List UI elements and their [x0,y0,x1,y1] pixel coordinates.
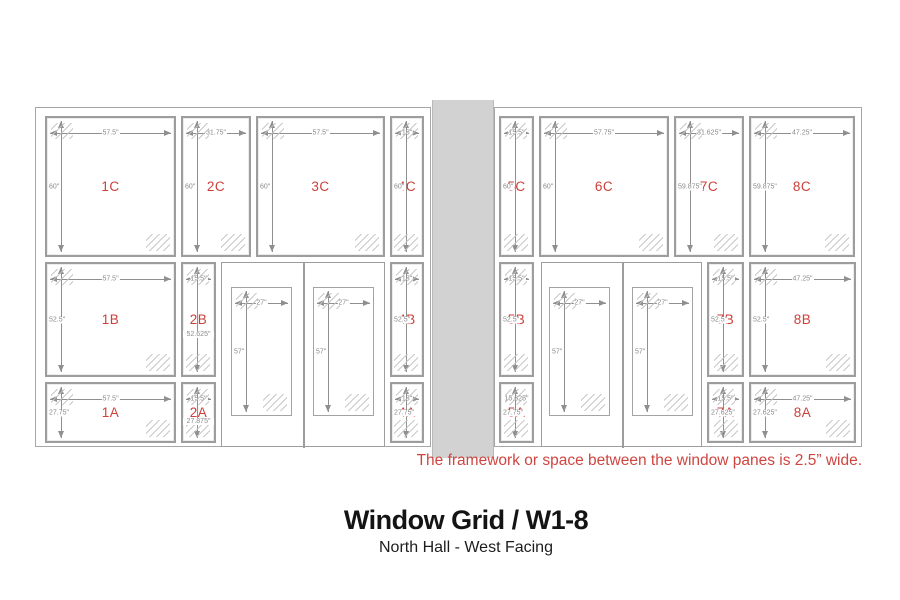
glass-hatch-icon [637,293,659,309]
height-dimension-label: 57" [233,348,245,355]
glass-hatch-icon [755,123,777,139]
glass-hatch-icon [318,293,340,309]
page-title: Window Grid / W1-8 [16,505,900,536]
right-door-glass-1: 27"57" [549,287,610,416]
glass-hatch-icon [545,123,567,139]
window-5C: 15.5"60"5C [499,116,534,257]
glass-hatch-icon [505,269,527,285]
arrow-down-icon [687,245,693,252]
height-dimension-label: 52.5" [502,316,520,323]
glass-hatch-icon [505,123,527,139]
glass-hatch-icon [146,354,170,371]
window-7A: 15.5"27.625"7A [707,382,744,443]
glass-hatch-icon [146,420,170,437]
arrow-right-icon [164,130,171,136]
window-2A: 15.5"27.875"2A [181,382,216,443]
glass-hatch-icon [146,234,170,251]
glass-hatch-icon [186,354,210,371]
window-2B: 15.5"52.625"2B [181,262,216,377]
arrow-right-icon [239,130,246,136]
arrow-right-icon [732,130,739,136]
glass-hatch-icon [755,389,777,405]
width-dimension-label: 57.5" [101,276,119,283]
arrow-down-icon [552,245,558,252]
arrow-right-icon [164,276,171,282]
window-8A: 47.25"27.625"8A [749,382,856,443]
glass-hatch-icon [826,420,850,437]
glass-hatch-icon [394,420,418,437]
glass-hatch-icon [187,389,209,405]
glass-hatch-icon [714,420,738,437]
window-8B: 47.25"52.5"8B [749,262,856,377]
width-dimension-label: 57.5" [101,396,119,403]
glass-hatch-icon [755,269,777,285]
height-dimension-label: 27.875" [183,418,214,425]
width-dimension-label: 47.25" [791,276,813,283]
window-label: 3C [258,178,383,193]
right-double-door-divider [622,263,624,448]
window-7B: 15.5"52.5"7B [707,262,744,377]
glass-hatch-icon [236,293,258,309]
glass-hatch-icon [396,123,418,139]
arrow-right-icon [844,276,851,282]
width-dimension-label: 57.75" [593,130,615,137]
glass-hatch-icon [714,234,738,251]
height-dimension-label: 59.875" [677,183,703,190]
arrow-down-icon [194,245,200,252]
left-door-glass-1: 27"57" [231,287,292,416]
arrow-right-icon [844,396,851,402]
window-grid-drawing: { "title": "Window Grid / W1-8", "subtit… [0,0,900,600]
height-dimension-label: 57" [634,348,646,355]
height-dimension-label: 27.625" [752,409,778,416]
window-5A: 15.625"27.75"5A [499,382,534,443]
height-dimension-label: 57" [551,348,563,355]
right-door-glass-2: 27"57" [632,287,693,416]
window-4B: 15"52.5"4B [390,262,424,377]
height-dimension-label: 60" [542,183,554,190]
height-dimension-label: 52.5" [710,316,728,323]
glass-hatch-icon [394,354,418,371]
arrow-right-icon [164,396,171,402]
height-dimension-label: 27.75" [502,409,524,416]
glass-hatch-icon [826,354,850,371]
glass-hatch-icon [825,234,849,251]
window-8C: 47.25"59.875"8C [749,116,855,257]
arrow-right-icon [363,300,370,306]
arrow-down-icon [58,245,64,252]
window-label: 6C [541,178,667,193]
arrow-down-icon [58,431,64,438]
window-5B: 15.5"52.5"5B [499,262,534,377]
glass-hatch-icon [51,269,73,285]
window-label: 2B [183,311,214,326]
framework-note: The framework or space between the windo… [417,452,862,470]
glass-hatch-icon [345,394,369,411]
arrow-right-icon [281,300,288,306]
glass-hatch-icon [51,389,73,405]
glass-hatch-icon [713,389,735,405]
glass-hatch-icon [714,354,738,371]
height-dimension-label: 60" [502,183,514,190]
arrow-down-icon [58,365,64,372]
window-2C: 31.75"60"2C [181,116,251,257]
arrow-down-icon [762,431,768,438]
glass-hatch-icon [504,420,528,437]
window-1C: 57.5"60"1C [45,116,176,257]
arrow-down-icon [561,405,567,412]
glass-hatch-icon [504,354,528,371]
arrow-down-icon [762,245,768,252]
arrow-down-icon [644,405,650,412]
arrow-down-icon [269,245,275,252]
window-4C: 15"60"4C [390,116,424,257]
arrow-right-icon [682,300,689,306]
arrow-down-icon [325,405,331,412]
glass-hatch-icon [581,394,605,411]
glass-hatch-icon [639,234,663,251]
glass-hatch-icon [664,394,688,411]
arrow-right-icon [657,130,664,136]
arrow-right-icon [373,130,380,136]
window-1B: 57.5"52.5"1B [45,262,176,377]
width-dimension-label: 57.5" [101,130,119,137]
width-dimension-label: 57.5" [311,130,329,137]
title-block: Window Grid / W1-8 North Hall - West Fac… [16,505,900,557]
glass-hatch-icon [396,269,418,285]
height-dimension-label: 60" [48,183,60,190]
height-dimension-label: 60" [184,183,196,190]
window-6C: 57.75"60"6C [539,116,669,257]
height-dimension-label: 60" [393,183,405,190]
height-dimension-label: 57" [315,348,327,355]
window-3C: 57.5"60"3C [256,116,385,257]
glass-hatch-icon [221,234,245,251]
arrow-right-icon [843,130,850,136]
glass-hatch-icon [396,389,418,405]
window-label: 1C [47,178,174,193]
height-dimension-label: 27.75" [48,409,70,416]
width-dimension-label: 47.25" [791,396,813,403]
arrow-down-icon [762,365,768,372]
height-dimension-label: 52.5" [393,316,411,323]
height-dimension-label: 59.875" [752,183,778,190]
height-dimension-label: 52.5" [48,316,66,323]
glass-hatch-icon [51,123,73,139]
height-dimension-label: 52.625" [183,331,214,338]
window-4A: 15"27.75"4A [390,382,424,443]
glass-hatch-icon [394,234,418,251]
page-subtitle: North Hall - West Facing [16,539,900,557]
glass-hatch-icon [355,234,379,251]
glass-hatch-icon [263,394,287,411]
arrow-down-icon [243,405,249,412]
window-7C: 31.625"59.875"7C [674,116,744,257]
arrow-right-icon [599,300,606,306]
glass-hatch-icon [713,269,735,285]
glass-hatch-icon [262,123,284,139]
glass-hatch-icon [187,269,209,285]
wall-divider [432,100,494,458]
height-dimension-label: 27.625" [710,409,736,416]
height-dimension-label: 27.75" [393,409,415,416]
left-double-door-divider [303,263,305,448]
glass-hatch-icon [554,293,576,309]
glass-hatch-icon [680,123,702,139]
glass-hatch-icon [187,123,209,139]
width-dimension-label: 47.25" [791,130,813,137]
window-label: 2A [183,404,214,419]
height-dimension-label: 52.5" [752,316,770,323]
left-door-glass-2: 27"57" [313,287,374,416]
glass-hatch-icon [505,389,527,405]
glass-hatch-icon [504,234,528,251]
window-1A: 57.5"27.75"1A [45,382,176,443]
height-dimension-label: 60" [259,183,271,190]
